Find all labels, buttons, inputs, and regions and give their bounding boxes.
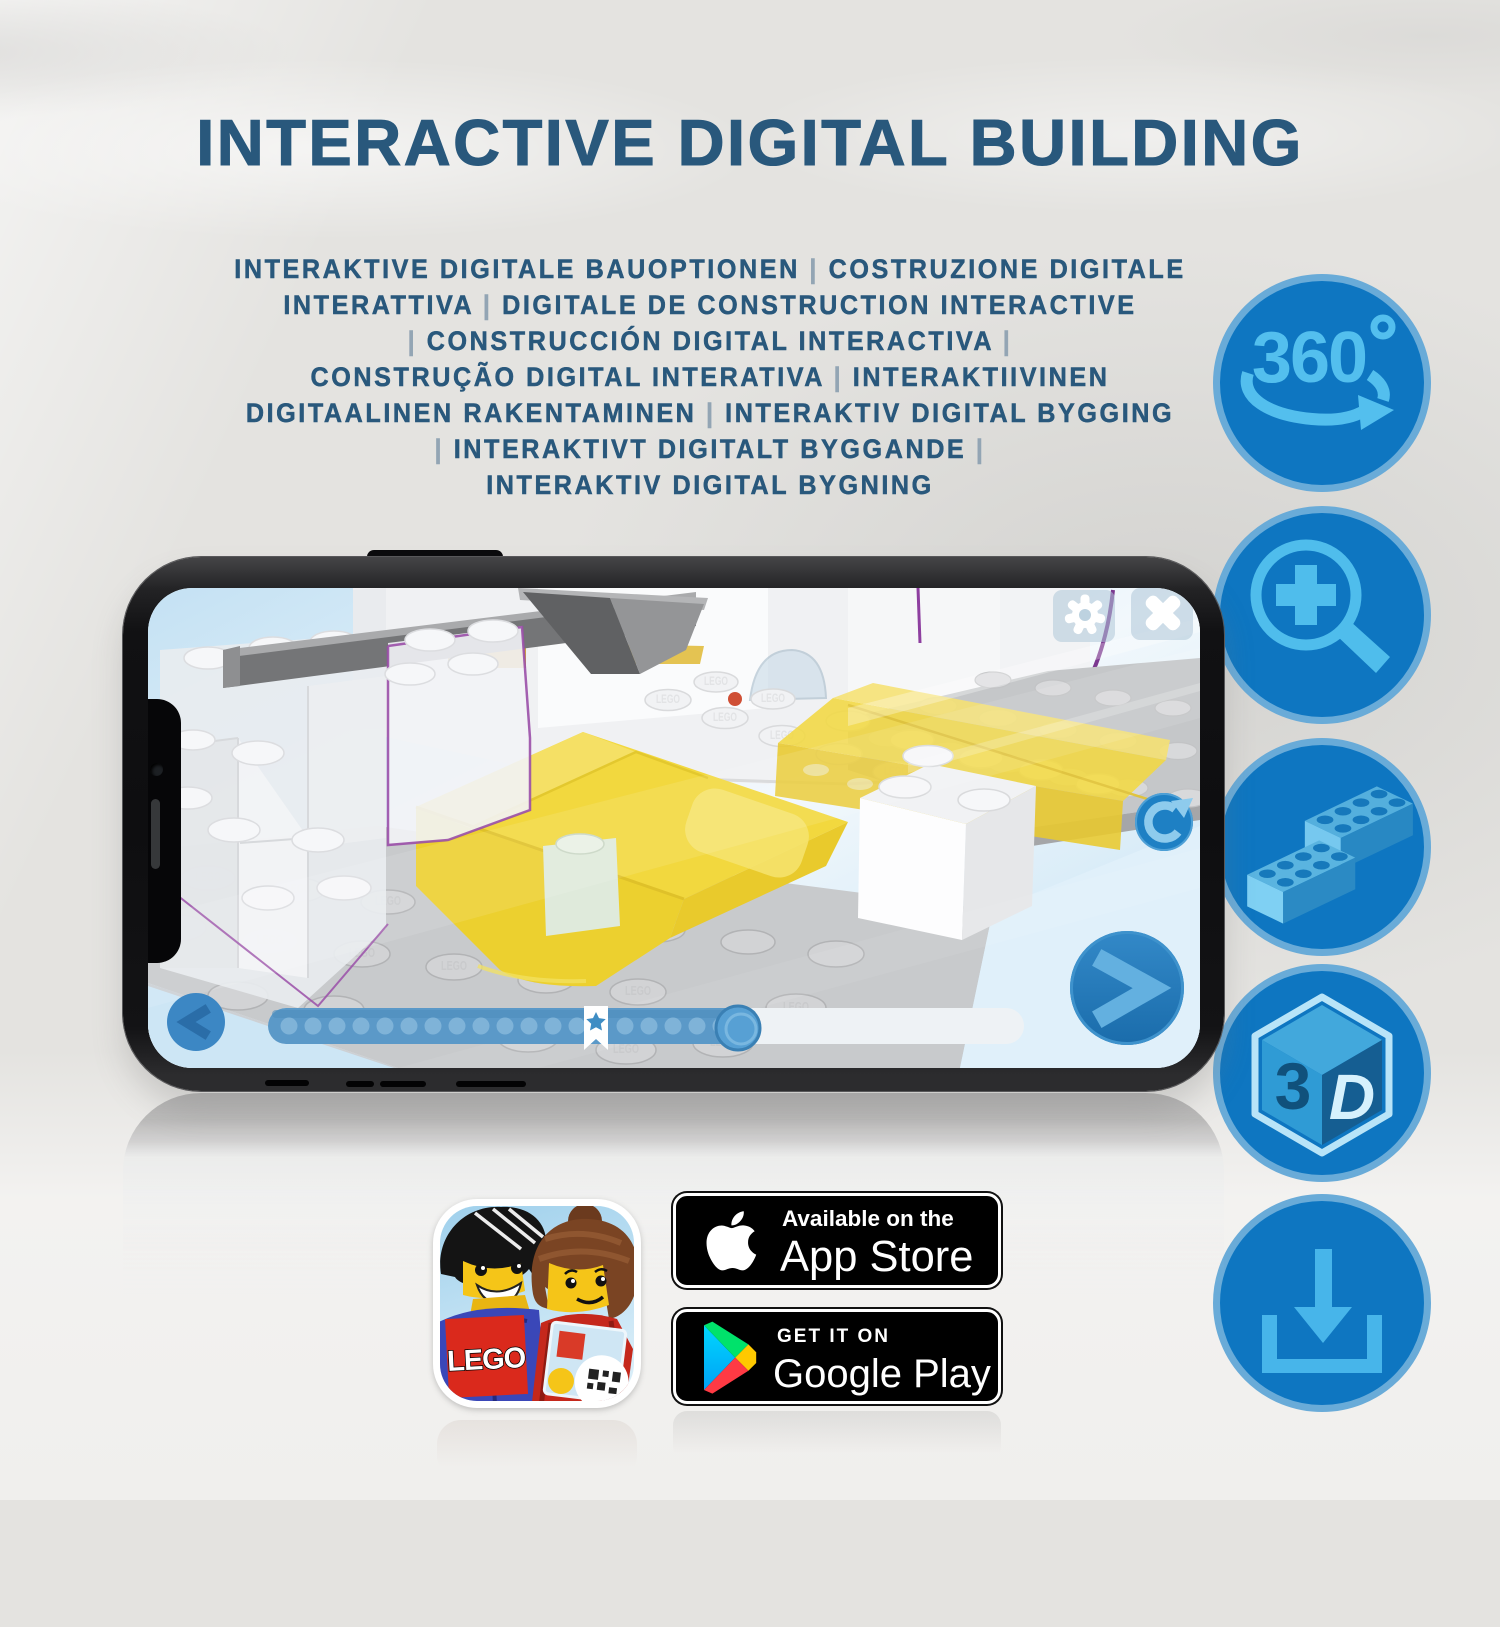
svg-text:App Store: App Store: [780, 1233, 973, 1281]
svg-text:LEGO: LEGO: [446, 1342, 526, 1378]
svg-text:LEGO: LEGO: [761, 691, 785, 705]
svg-text:Google Play: Google Play: [773, 1352, 991, 1396]
svg-text:360: 360: [1252, 318, 1366, 398]
svg-text:LEGO: LEGO: [656, 692, 680, 706]
svg-text:D: D: [1329, 1061, 1375, 1133]
svg-text:LEGO: LEGO: [441, 958, 467, 973]
svg-text:LEGO: LEGO: [704, 674, 728, 688]
svg-text:LEGO: LEGO: [625, 983, 651, 998]
svg-text:Available on the: Available on the: [782, 1206, 954, 1231]
svg-text:LEGO: LEGO: [713, 710, 737, 724]
svg-text:GET IT ON: GET IT ON: [777, 1326, 890, 1347]
svg-text:3: 3: [1275, 1049, 1312, 1123]
